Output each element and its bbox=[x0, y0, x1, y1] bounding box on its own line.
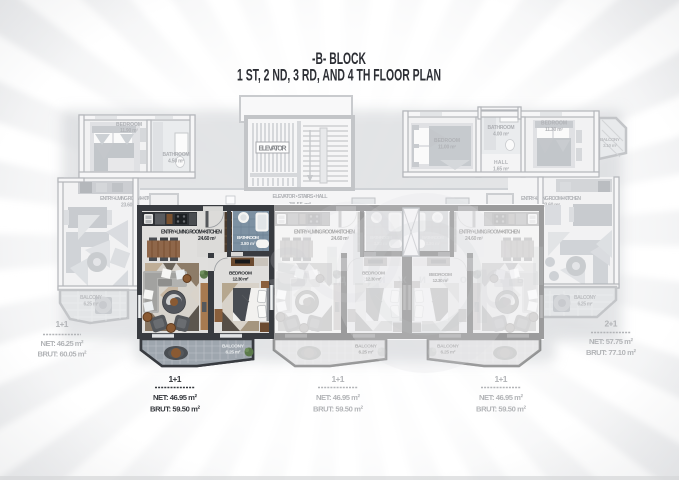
svg-text:1 ST, 2 ND, 3 RD, AND 4 TH FLO: 1 ST, 2 ND, 3 RD, AND 4 TH FLOOR PLAN bbox=[237, 66, 441, 85]
svg-text:BEDROOM: BEDROOM bbox=[434, 138, 460, 144]
svg-text:BALCONY: BALCONY bbox=[600, 137, 620, 142]
svg-text:24.60 m²: 24.60 m² bbox=[198, 236, 216, 242]
svg-text:BRUT: 59.50 m²: BRUT: 59.50 m² bbox=[476, 405, 526, 414]
svg-text:ı: ı bbox=[528, 221, 548, 301]
svg-text:HALL: HALL bbox=[494, 160, 508, 166]
svg-text:11.90 m²: 11.90 m² bbox=[120, 128, 138, 134]
svg-text:ELEVATOR: ELEVATOR bbox=[259, 146, 287, 153]
svg-text:NET: 46.95 m²: NET: 46.95 m² bbox=[316, 393, 360, 402]
svg-text:BATHROOM: BATHROOM bbox=[237, 235, 259, 240]
svg-text:2+1: 2+1 bbox=[605, 319, 618, 329]
svg-text:BRUT: 60.05 m²: BRUT: 60.05 m² bbox=[38, 350, 87, 359]
svg-text:BRUT: 59.50 m²: BRUT: 59.50 m² bbox=[150, 405, 200, 414]
svg-text:BALCONY: BALCONY bbox=[80, 295, 103, 301]
svg-text:4.00 m²: 4.00 m² bbox=[493, 132, 509, 138]
svg-text:BEDROOM: BEDROOM bbox=[229, 271, 252, 277]
svg-text:1+1: 1+1 bbox=[495, 374, 508, 384]
svg-text:6.25 m²: 6.25 m² bbox=[226, 350, 241, 356]
svg-text:1+1: 1+1 bbox=[169, 374, 182, 384]
svg-text:BALCONY: BALCONY bbox=[574, 295, 597, 301]
svg-text:NET: 46.95 m²: NET: 46.95 m² bbox=[153, 393, 197, 402]
svg-text:1+1: 1+1 bbox=[56, 319, 69, 329]
svg-text:ENTRY+LIVING ROOM+KITCHEN: ENTRY+LIVING ROOM+KITCHEN bbox=[161, 230, 222, 236]
svg-text:NET: 57.75 m²: NET: 57.75 m² bbox=[589, 337, 633, 346]
svg-text:NET: 46.25 m²: NET: 46.25 m² bbox=[41, 339, 84, 348]
svg-text:NET: 46.95 m²: NET: 46.95 m² bbox=[479, 393, 523, 402]
svg-text:BEDROOM: BEDROOM bbox=[541, 121, 567, 127]
svg-text:11.00 m²: 11.00 m² bbox=[438, 145, 456, 151]
svg-text:6.25 m²: 6.25 m² bbox=[578, 302, 593, 308]
svg-text:3.10 m²: 3.10 m² bbox=[603, 143, 617, 148]
svg-text:ENTRY+LIVING ROOM+KITCHEN: ENTRY+LIVING ROOM+KITCHEN bbox=[521, 196, 581, 202]
svg-text:BRUT: 59.50 m²: BRUT: 59.50 m² bbox=[313, 405, 363, 414]
svg-text:ı: ı bbox=[322, 221, 342, 301]
svg-text:3.80 m²: 3.80 m² bbox=[241, 241, 256, 246]
svg-text:12.30 m²: 12.30 m² bbox=[233, 277, 249, 283]
svg-text:BALCONY: BALCONY bbox=[222, 344, 245, 350]
svg-text:s: s bbox=[266, 218, 311, 307]
svg-text:BATHROOM: BATHROOM bbox=[488, 125, 515, 131]
svg-text:BATHROOM: BATHROOM bbox=[163, 152, 190, 158]
svg-text:4.50 m²: 4.50 m² bbox=[168, 159, 184, 165]
svg-text:н е д в и ж и м о с т ь: н е д в и ж и м о с т ь bbox=[300, 272, 529, 286]
svg-text:ELEVATOR • STAIRS • HALL: ELEVATOR • STAIRS • HALL bbox=[273, 194, 329, 200]
svg-text:BRUT: 77.10 m²: BRUT: 77.10 m² bbox=[586, 348, 636, 357]
svg-text:6.25 m²: 6.25 m² bbox=[84, 302, 99, 308]
svg-text:l: l bbox=[348, 221, 368, 301]
svg-text:11.30 m²: 11.30 m² bbox=[545, 127, 563, 133]
svg-text:1+1: 1+1 bbox=[332, 374, 345, 384]
